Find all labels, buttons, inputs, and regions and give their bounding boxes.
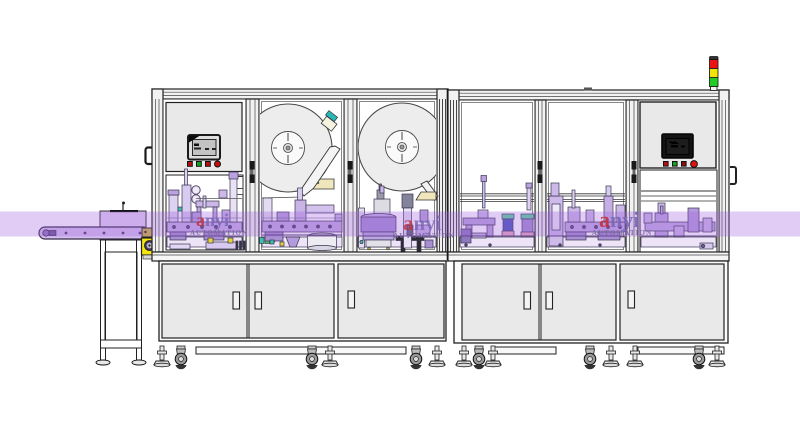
svg-text:AUTOMATION: AUTOMATION	[393, 231, 455, 240]
svg-text:AUTOMATION: AUTOMATION	[592, 229, 652, 237]
svg-text:anyi: anyi	[196, 210, 229, 230]
svg-text:AUTOMATION: AUTOMATION	[190, 230, 248, 237]
